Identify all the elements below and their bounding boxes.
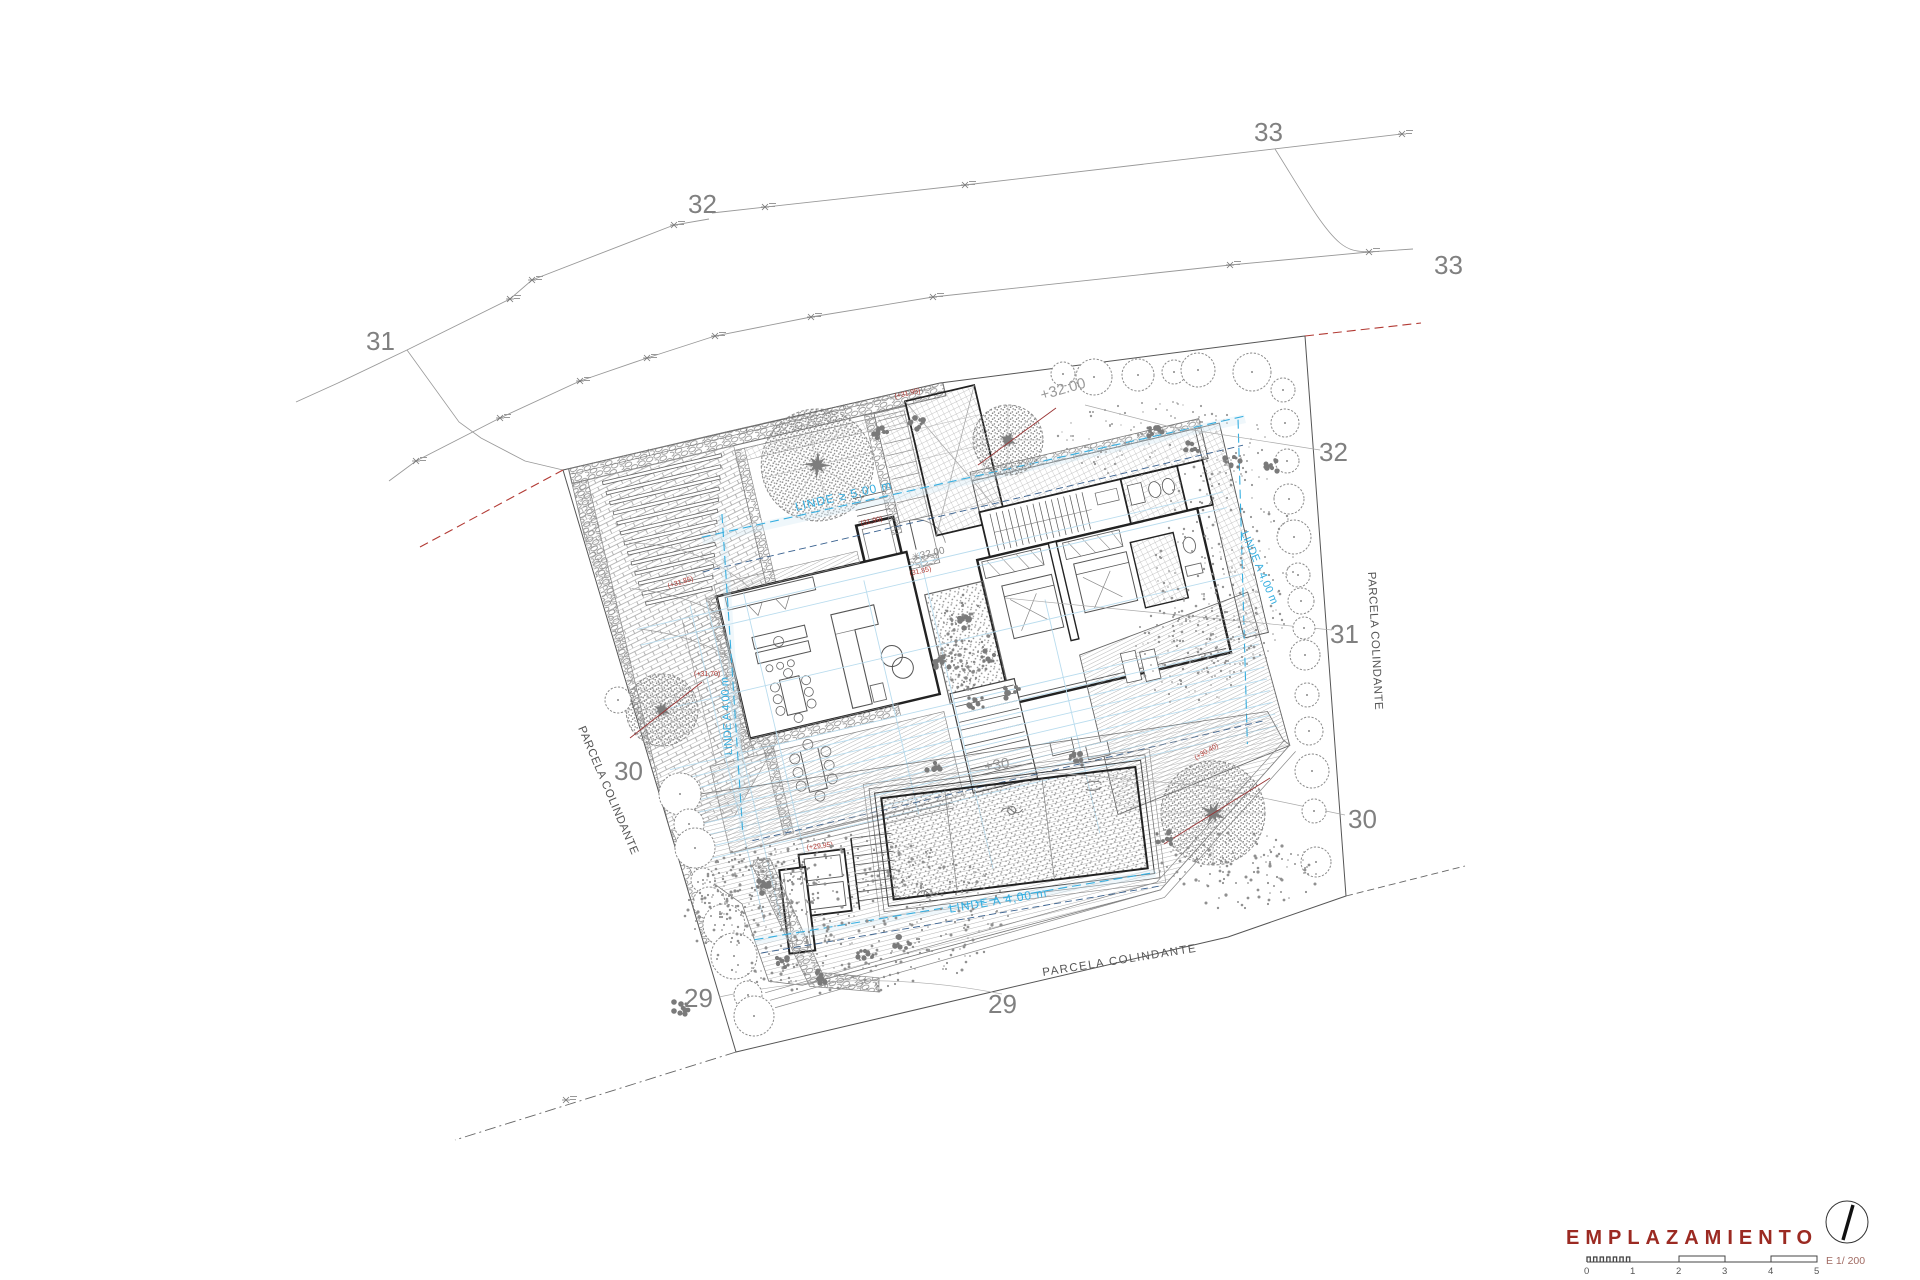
svg-text:EMPLAZAMIENTO: EMPLAZAMIENTO xyxy=(1566,1227,1818,1249)
svg-text:5: 5 xyxy=(1814,1266,1819,1277)
svg-text:3: 3 xyxy=(1722,1266,1727,1277)
svg-text:33: 33 xyxy=(1434,250,1463,280)
svg-text:31: 31 xyxy=(1330,619,1359,649)
svg-text:33: 33 xyxy=(1254,117,1283,147)
svg-text:32: 32 xyxy=(688,189,717,219)
svg-text:E 1/ 200: E 1/ 200 xyxy=(1826,1255,1865,1267)
svg-text:32: 32 xyxy=(1319,437,1348,467)
svg-text:1: 1 xyxy=(1630,1266,1635,1277)
svg-text:31: 31 xyxy=(366,326,395,356)
svg-text:(+31,70): (+31,70) xyxy=(694,671,720,678)
svg-text:0: 0 xyxy=(1584,1266,1589,1277)
svg-text:30: 30 xyxy=(614,756,643,786)
svg-text:29: 29 xyxy=(988,989,1017,1019)
svg-text:29: 29 xyxy=(684,983,713,1013)
svg-text:30: 30 xyxy=(1348,804,1377,834)
svg-text:4: 4 xyxy=(1768,1266,1773,1277)
svg-text:2: 2 xyxy=(1676,1266,1681,1277)
